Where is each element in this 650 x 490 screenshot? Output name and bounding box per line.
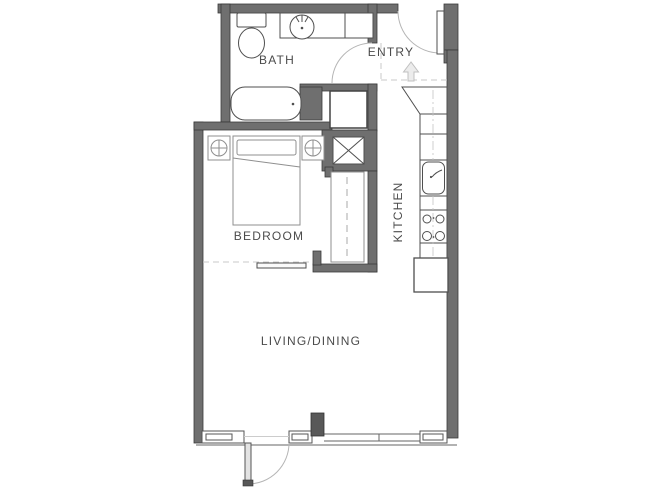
plumbing-chase xyxy=(300,87,322,120)
counter-segment xyxy=(420,243,447,258)
mechanical-shaft-icon xyxy=(333,137,364,164)
entry-direction-arrow-icon xyxy=(404,62,419,81)
room-label-bedroom: BEDROOM xyxy=(219,229,319,243)
laundry-right-wall xyxy=(368,84,377,131)
balcony-door-stop xyxy=(243,480,253,486)
kitchen-sink-icon xyxy=(423,162,445,194)
sliding-door-panel xyxy=(257,263,306,268)
counter-segment xyxy=(420,196,447,210)
sliding-door-stub xyxy=(313,251,321,265)
room-label-kitchen: KITCHEN xyxy=(391,162,405,262)
window-frame-inner xyxy=(292,434,308,440)
structural-column xyxy=(311,413,324,436)
kitchen-sink-drain xyxy=(430,176,432,178)
kitchen-fixtures xyxy=(402,87,448,292)
counter-segment xyxy=(420,134,447,160)
left-wall xyxy=(194,122,203,443)
angled-cabinet xyxy=(402,87,447,114)
balcony-door-swing-arc xyxy=(248,443,289,484)
room-label-living-dining: LIVING/DINING xyxy=(241,334,381,348)
balcony-door-leaf xyxy=(245,443,251,483)
burner xyxy=(423,232,432,241)
window-frame-inner xyxy=(423,434,443,440)
top-right-wall xyxy=(444,4,458,50)
bath-bedroom-wall xyxy=(194,122,332,130)
burner xyxy=(423,215,431,223)
window-wall xyxy=(196,413,457,445)
counter-segment xyxy=(420,114,447,134)
walls xyxy=(194,4,458,443)
tub-drain xyxy=(292,103,295,106)
bed-pillow xyxy=(237,140,296,155)
cooktop-knob xyxy=(433,217,435,219)
sink-drain xyxy=(301,27,304,30)
bed xyxy=(233,136,300,225)
floor-plan-drawing xyxy=(0,0,650,490)
bathtub-icon xyxy=(231,87,301,120)
room-label-entry: ENTRY xyxy=(341,45,441,59)
closet-right-wall xyxy=(368,171,377,272)
window-frame-inner xyxy=(206,434,232,440)
refrigerator xyxy=(414,258,448,292)
cooktop-knob xyxy=(433,236,435,238)
toilet-tank xyxy=(237,13,266,27)
bed-fold-line xyxy=(233,158,300,167)
burner xyxy=(436,232,445,241)
right-wall xyxy=(447,50,458,438)
burner xyxy=(436,215,444,223)
closet-bottom-wall xyxy=(313,264,377,272)
washer-dryer-box xyxy=(330,91,367,128)
floor-plan: BATH ENTRY BEDROOM KITCHEN LIVING/DINING xyxy=(0,0,650,490)
room-label-bath: BATH xyxy=(227,53,327,67)
